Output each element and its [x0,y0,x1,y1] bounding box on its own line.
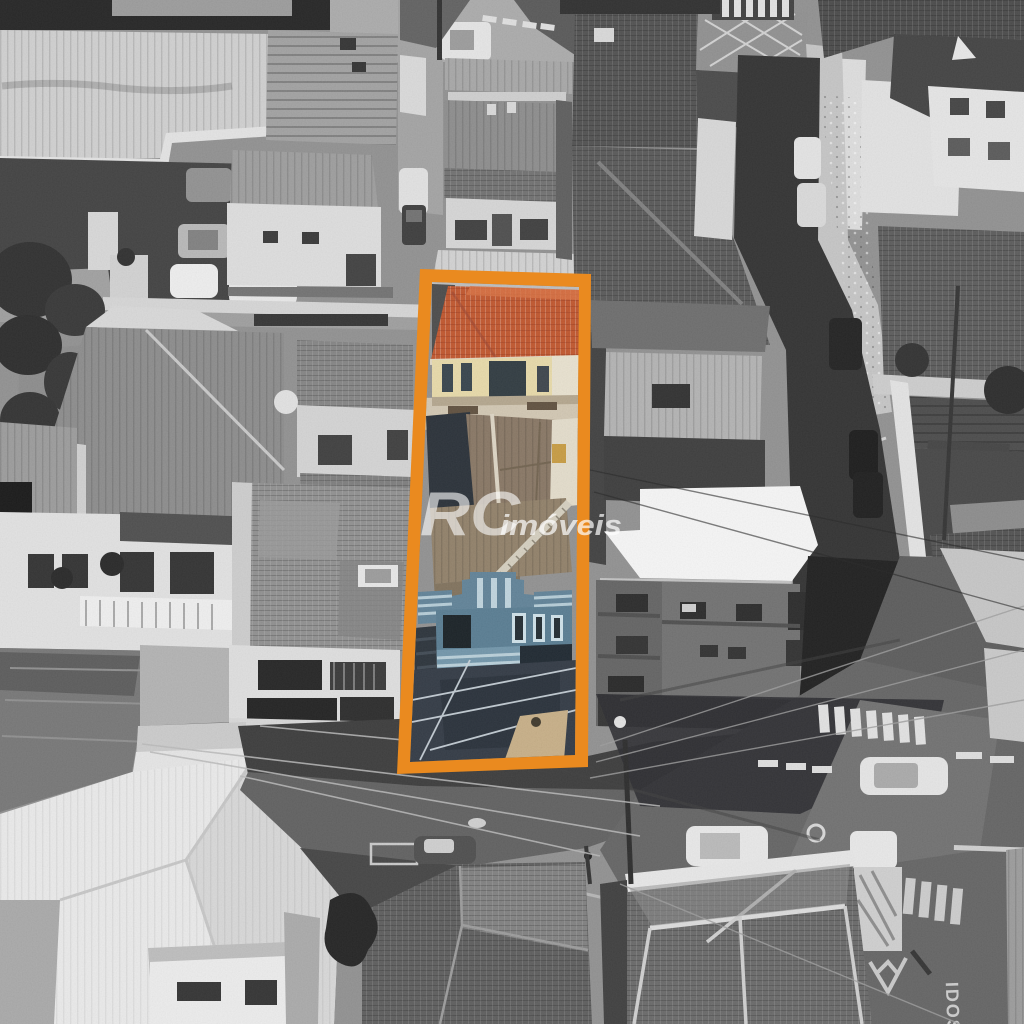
svg-text:imóveis: imóveis [500,510,622,542]
